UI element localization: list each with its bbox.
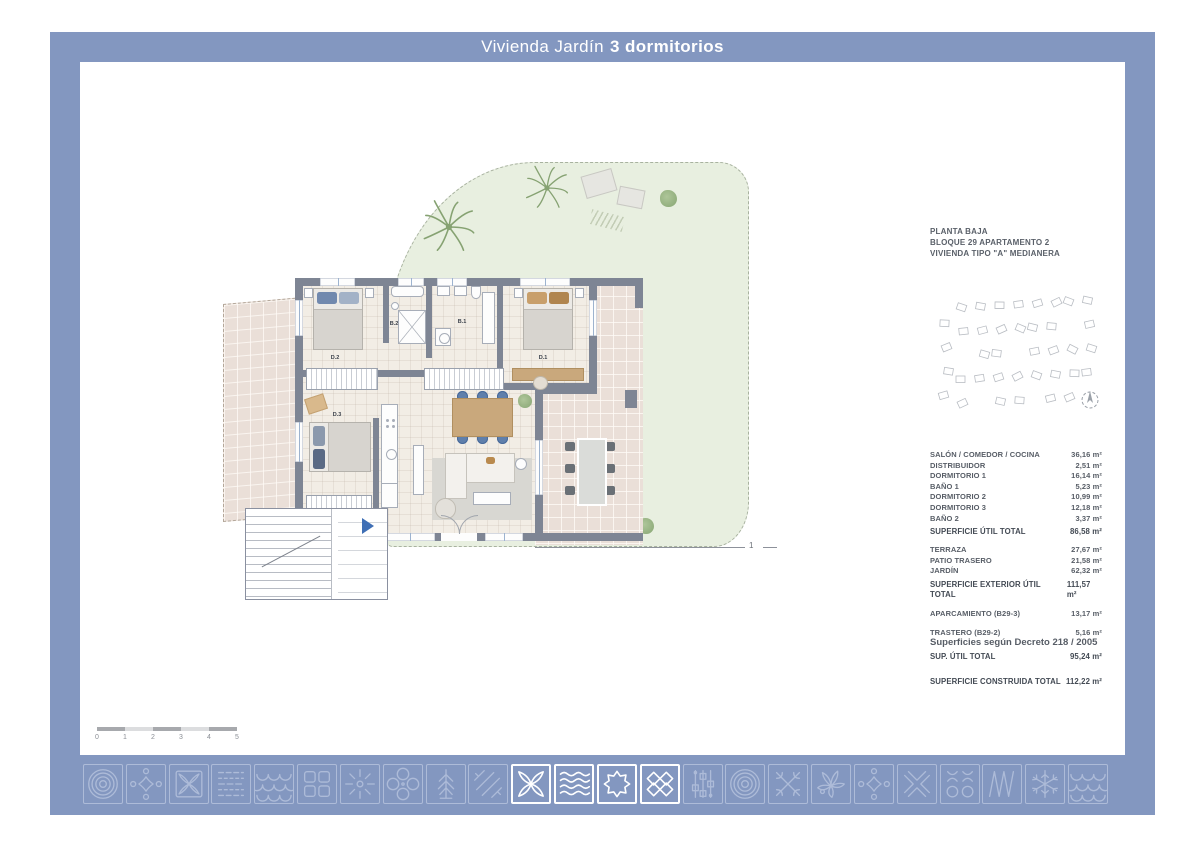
- decree-note: Superficies según Decreto 218 / 2005: [930, 637, 1102, 648]
- washing-machine: [435, 328, 451, 346]
- wall: [497, 283, 503, 377]
- area-value: 86,58 m²: [1070, 527, 1102, 538]
- outdoor-table: [577, 438, 607, 506]
- area-label: JARDÍN: [930, 566, 959, 577]
- area-row: JARDÍN62,32 m²: [930, 566, 1102, 577]
- palm-tree: [523, 164, 571, 212]
- kitchen-island: [413, 445, 424, 495]
- area-label: SUPERFICIE ÚTIL TOTAL: [930, 527, 1026, 538]
- scale-segment: [125, 727, 153, 731]
- four-squares-icon[interactable]: [297, 764, 337, 804]
- scale-tick: 2: [151, 734, 155, 741]
- area-label: DISTRIBUIDOR: [930, 461, 985, 472]
- scale-segment: [209, 727, 237, 731]
- area-row: APARCAMIENTO (B29-3)13,17 m²: [930, 609, 1102, 620]
- nightstand: [365, 288, 374, 298]
- area-value: 5,23 m²: [1075, 482, 1102, 493]
- palm-leaves-icon[interactable]: [811, 764, 851, 804]
- outdoor-chair: [565, 464, 575, 473]
- wardrobe: [306, 368, 378, 390]
- sink: [454, 286, 467, 296]
- plan-header-line1: PLANTA BAJA: [930, 226, 1120, 237]
- window: [520, 278, 570, 286]
- concentric-rings-2-icon[interactable]: [725, 764, 765, 804]
- pattern-icon-band: [50, 755, 1155, 815]
- area-value: 13,17 m²: [1071, 609, 1102, 620]
- pillow: [527, 292, 547, 304]
- title-regular: Vivienda Jardín: [481, 37, 604, 56]
- plan-sheet-page: Vivienda Jardín3 dormitorios: [0, 0, 1200, 847]
- ray-burst-icon[interactable]: [340, 764, 380, 804]
- wall: [383, 283, 389, 343]
- shower-column: [482, 292, 495, 344]
- window: [437, 278, 467, 286]
- area-label: BAÑO 1: [930, 482, 959, 493]
- window: [295, 422, 303, 462]
- palm-tree: [420, 198, 478, 256]
- area-value: 12,18 m²: [1071, 503, 1102, 514]
- shower: [398, 310, 426, 344]
- area-row: SUPERFICIE EXTERIOR ÚTIL TOTAL111,57 m²: [930, 580, 1102, 601]
- frame-left: [50, 32, 80, 815]
- area-value: 10,99 m²: [1071, 492, 1102, 503]
- wall-pier: [625, 390, 637, 408]
- pillow: [313, 449, 325, 469]
- fish-scales-icon[interactable]: [254, 764, 294, 804]
- pillow: [339, 292, 359, 304]
- waves-icon[interactable]: [554, 764, 594, 804]
- area-row: DORMITORIO 116,14 m²: [930, 471, 1102, 482]
- area-row: PATIO TRASERO21,58 m²: [930, 556, 1102, 567]
- concentric-rings-icon[interactable]: [83, 764, 123, 804]
- pine-tree-icon[interactable]: [426, 764, 466, 804]
- page-title: Vivienda Jardín3 dormitorios: [481, 37, 724, 57]
- plan-header-line2: BLOQUE 29 APARTAMENTO 2: [930, 237, 1120, 248]
- area-label: DORMITORIO 3: [930, 503, 986, 514]
- area-label: DORMITORIO 2: [930, 492, 986, 503]
- scale-tick: 5: [235, 734, 239, 741]
- area-label: TERRAZA: [930, 545, 967, 556]
- star-dots-2-icon[interactable]: [854, 764, 894, 804]
- garden-bush: [660, 190, 677, 207]
- quatrefoil-icon[interactable]: [169, 764, 209, 804]
- area-label: SALÓN / COMEDOR / COCINA: [930, 450, 1040, 461]
- wall: [426, 283, 432, 358]
- area-label: APARCAMIENTO (B29-3): [930, 609, 1020, 620]
- area-label: BAÑO 2: [930, 514, 959, 525]
- nightstand: [304, 288, 313, 298]
- window: [589, 300, 597, 336]
- floor-plan: 1 D.2 B.2 B.1 D.1 D.3: [85, 150, 775, 620]
- area-label: DORMITORIO 1: [930, 471, 986, 482]
- plan-header: PLANTA BAJA BLOQUE 29 APARTAMENTO 2 VIVI…: [930, 226, 1120, 259]
- area-row: DISTRIBUIDOR2,51 m²: [930, 461, 1102, 472]
- scale-tick: 3: [179, 734, 183, 741]
- section-line: [535, 547, 745, 548]
- dining-table: [452, 398, 513, 437]
- area-label: PATIO TRASERO: [930, 556, 992, 567]
- room-label-d3: D.3: [333, 412, 342, 418]
- window: [295, 300, 303, 336]
- totals-block: Superficies según Decreto 218 / 2005 SUP…: [930, 637, 1102, 687]
- washer-door: [439, 333, 450, 344]
- area-value: 62,32 m²: [1071, 566, 1102, 577]
- blanket: [314, 309, 362, 349]
- toilet: [471, 286, 481, 299]
- nightstand: [575, 288, 584, 298]
- area-value: 3,37 m²: [1075, 514, 1102, 525]
- chevron-cross-icon[interactable]: [897, 764, 937, 804]
- frame-right: [1125, 32, 1155, 815]
- sofa-chaise: [445, 453, 467, 499]
- site-location-map: [930, 290, 1108, 418]
- snowflake-icon[interactable]: [1025, 764, 1065, 804]
- area-value: 112,22 m²: [1066, 677, 1102, 688]
- scale-segment: [97, 727, 125, 731]
- window: [320, 278, 355, 286]
- coffee-table: [473, 492, 511, 505]
- petal-cross-icon[interactable]: [511, 764, 551, 804]
- area-label: SUPERFICIE CONSTRUIDA TOTAL: [930, 677, 1061, 688]
- bed-double: [313, 288, 363, 350]
- star-dots-icon[interactable]: [126, 764, 166, 804]
- eight-point-star-icon[interactable]: [597, 764, 637, 804]
- scale-tick: 4: [207, 734, 211, 741]
- slider-beads-icon[interactable]: [683, 764, 723, 804]
- window: [385, 533, 435, 541]
- area-value: 95,24 m²: [1070, 652, 1102, 663]
- area-row: DORMITORIO 210,99 m²: [930, 492, 1102, 503]
- sink: [391, 302, 399, 310]
- area-label: SUP. ÚTIL TOTAL: [930, 652, 995, 663]
- section-marker: 1: [749, 541, 753, 550]
- entrance-arrow: [362, 518, 374, 534]
- area-value: 2,51 m²: [1075, 461, 1102, 472]
- area-row: TERRAZA27,67 m²: [930, 545, 1102, 556]
- title-bold: 3 dormitorios: [610, 37, 724, 56]
- scale-segment: [181, 727, 209, 731]
- constructed-row: SUPERFICIE CONSTRUIDA TOTAL 112,22 m²: [930, 677, 1102, 688]
- window: [485, 533, 523, 541]
- bathtub: [391, 286, 424, 297]
- sup-util-row: SUP. ÚTIL TOTAL 95,24 m²: [930, 652, 1102, 663]
- area-value: 21,58 m²: [1071, 556, 1102, 567]
- scale-tick: 1: [123, 734, 127, 741]
- zigzag-lines-icon[interactable]: [982, 764, 1022, 804]
- outdoor-chair: [565, 442, 575, 451]
- diagonal-hatch-icon[interactable]: [468, 764, 508, 804]
- kitchen-sink: [386, 449, 397, 460]
- outdoor-chair: [565, 486, 575, 495]
- sink: [437, 286, 450, 296]
- bed-double: [309, 422, 371, 472]
- room-label-d1: D.1: [539, 355, 548, 361]
- desk-chair: [533, 376, 548, 390]
- pillow: [317, 292, 337, 304]
- indoor-plant: [518, 394, 532, 408]
- dashed-lines-icon[interactable]: [211, 764, 251, 804]
- wall: [635, 278, 643, 308]
- area-value: 36,16 m²: [1071, 450, 1102, 461]
- room-label-b1: B.1: [458, 319, 467, 325]
- area-table-interior: SALÓN / COMEDOR / COCINA36,16 m²DISTRIBU…: [930, 450, 1102, 538]
- cross-weave-icon[interactable]: [768, 764, 808, 804]
- title-band: Vivienda Jardín3 dormitorios: [50, 32, 1155, 62]
- area-table-exterior: TERRAZA27,67 m²PATIO TRASERO21,58 m²JARD…: [930, 545, 1102, 638]
- scale-segment: [153, 727, 181, 731]
- area-value: 27,67 m²: [1071, 545, 1102, 556]
- scale-bar: 012345: [97, 727, 247, 745]
- pillow: [313, 426, 325, 446]
- blanket: [524, 309, 572, 349]
- area-value: 16,14 m²: [1071, 471, 1102, 482]
- wardrobe: [424, 368, 504, 390]
- entrance-opening: [441, 533, 477, 541]
- area-row: SUPERFICIE ÚTIL TOTAL86,58 m²: [930, 527, 1102, 538]
- desk: [512, 368, 584, 381]
- nightstand: [514, 288, 523, 298]
- section-line-end: [763, 547, 777, 548]
- area-row: DORMITORIO 312,18 m²: [930, 503, 1102, 514]
- plan-header-line3: VIVIENDA TIPO "A" MEDIANERA: [930, 248, 1120, 259]
- side-table: [515, 458, 527, 470]
- area-value: 111,57 m²: [1067, 580, 1102, 601]
- area-row: BAÑO 15,23 m²: [930, 482, 1102, 493]
- terrace-door: [535, 440, 543, 495]
- room-label-b2: B.2: [390, 321, 399, 327]
- area-row: SALÓN / COMEDOR / COCINA36,16 m²: [930, 450, 1102, 461]
- blanket: [328, 423, 370, 471]
- pillow: [549, 292, 569, 304]
- area-label: SUPERFICIE EXTERIOR ÚTIL TOTAL: [930, 580, 1067, 601]
- area-row: BAÑO 23,37 m²: [930, 514, 1102, 525]
- diamond-lattice-icon[interactable]: [640, 764, 680, 804]
- window: [398, 278, 424, 286]
- bed-double: [523, 288, 573, 350]
- scale-tick: 0: [95, 734, 99, 741]
- fish-scales-2-icon[interactable]: [1068, 764, 1108, 804]
- circle-grid-icon[interactable]: [940, 764, 980, 804]
- kitchen-counter: [381, 404, 398, 508]
- four-circles-icon[interactable]: [383, 764, 423, 804]
- room-label-d2: D.2: [331, 355, 340, 361]
